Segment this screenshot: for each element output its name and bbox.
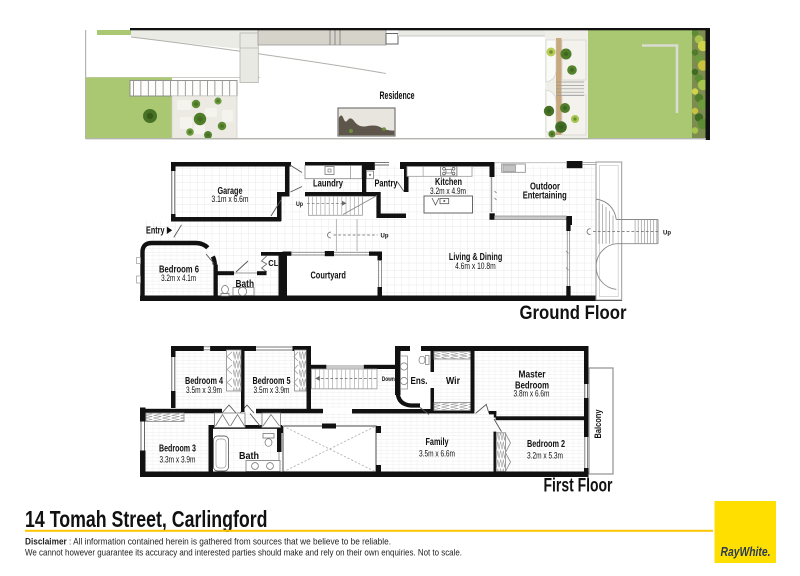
svg-text:Down: Down — [382, 377, 395, 383]
svg-text:First Floor: First Floor — [544, 476, 613, 497]
svg-text:Ground Floor: Ground Floor — [520, 303, 628, 324]
svg-text:Balcony: Balcony — [593, 409, 604, 439]
svg-text:Bedroom 2: Bedroom 2 — [527, 439, 565, 450]
svg-text:Entertaining: Entertaining — [523, 191, 567, 202]
svg-text:3.2m x 4.9m: 3.2m x 4.9m — [430, 186, 466, 196]
svg-text:Pantry: Pantry — [375, 179, 398, 190]
svg-text:Ens.: Ens. — [411, 376, 428, 387]
svg-text:3.1m x 6.6m: 3.1m x 6.6m — [212, 194, 249, 204]
svg-text:Entry: Entry — [146, 226, 165, 237]
svg-text:Up: Up — [296, 202, 303, 208]
svg-text:CL: CL — [268, 259, 278, 268]
svg-text:Disclaimer : All information c: Disclaimer : All information contained h… — [25, 537, 391, 547]
svg-text:Courtyard: Courtyard — [310, 271, 346, 282]
svg-text:Family: Family — [426, 437, 449, 448]
svg-text:Bedroom 3: Bedroom 3 — [159, 444, 196, 455]
svg-text:14 Tomah Street, Carlingford: 14 Tomah Street, Carlingford — [25, 506, 268, 532]
svg-text:3.5m x 6.6m: 3.5m x 6.6m — [419, 449, 455, 459]
svg-text:Up: Up — [663, 229, 671, 236]
svg-text:Bath: Bath — [236, 279, 255, 290]
svg-text:3.8m x 6.6m: 3.8m x 6.6m — [514, 389, 550, 399]
svg-text:We cannot however guarantee it: We cannot however guarantee its accuracy… — [25, 548, 462, 558]
svg-text:Wir: Wir — [446, 376, 460, 387]
svg-text:3.5m x 3.9m: 3.5m x 3.9m — [254, 385, 290, 395]
svg-text:3.3m x 3.9m: 3.3m x 3.9m — [160, 455, 196, 465]
svg-text:RayWhite.: RayWhite. — [721, 545, 771, 559]
svg-text:Residence: Residence — [380, 90, 415, 102]
svg-text:3.5m x 3.9m: 3.5m x 3.9m — [186, 385, 222, 395]
svg-text:3.2m x 5.3m: 3.2m x 5.3m — [527, 451, 563, 461]
svg-text:Laundry: Laundry — [313, 179, 343, 190]
svg-text:4.6m x 10.8m: 4.6m x 10.8m — [455, 261, 496, 271]
svg-text:3.2m x 4.1m: 3.2m x 4.1m — [161, 273, 196, 283]
svg-text:Up: Up — [381, 233, 389, 240]
svg-text:Bath: Bath — [239, 451, 259, 462]
svg-text:Master: Master — [519, 370, 546, 381]
